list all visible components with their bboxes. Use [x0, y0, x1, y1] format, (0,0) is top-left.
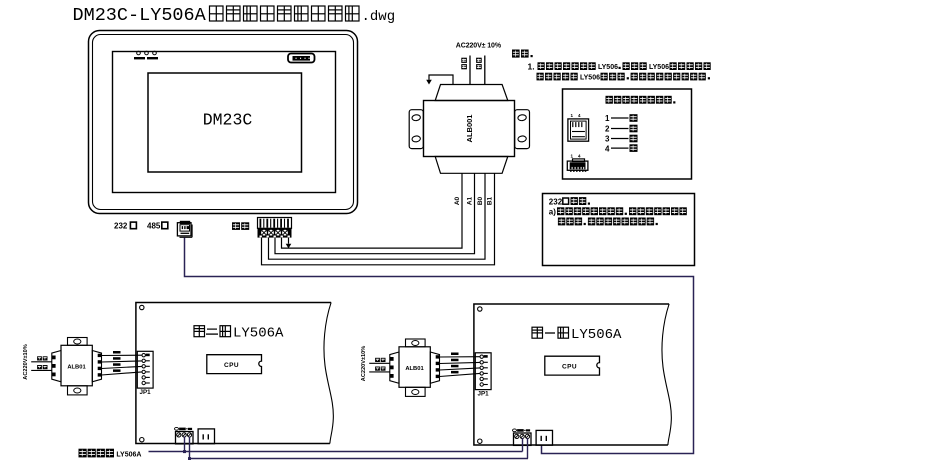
svg-text:DM23C: DM23C — [203, 111, 253, 130]
svg-text:a): a) — [549, 207, 556, 216]
svg-text:AC220V± 10%: AC220V± 10% — [456, 43, 502, 50]
svg-text:LY506A: LY506A — [116, 452, 141, 459]
svg-text:DM23C-LY506A: DM23C-LY506A — [73, 5, 207, 26]
svg-text:B1: B1 — [486, 196, 493, 205]
svg-text:LY506: LY506 — [649, 64, 669, 71]
svg-text:3: 3 — [605, 135, 610, 144]
svg-text:A0: A0 — [454, 196, 461, 205]
svg-text:AC220V±10%: AC220V±10% — [361, 346, 367, 381]
svg-text:AC220V±10%: AC220V±10% — [23, 344, 29, 379]
svg-text:ALB01: ALB01 — [405, 366, 424, 372]
svg-text:JP1: JP1 — [478, 391, 490, 398]
svg-text:CPU: CPU — [562, 364, 577, 371]
svg-text:A1: A1 — [466, 196, 473, 205]
svg-text:ALB01: ALB01 — [67, 365, 86, 371]
svg-text:JP1: JP1 — [140, 389, 152, 396]
svg-text:4: 4 — [605, 144, 610, 153]
svg-text:LY506A: LY506A — [233, 326, 284, 342]
svg-text:LY506A: LY506A — [571, 327, 622, 343]
svg-text:232: 232 — [549, 197, 563, 206]
svg-text:CPU: CPU — [224, 362, 239, 369]
svg-text:LY506: LY506 — [580, 75, 600, 82]
svg-text:232: 232 — [114, 222, 128, 231]
svg-text:1: 1 — [605, 114, 610, 123]
svg-text:1.: 1. — [528, 62, 535, 72]
svg-text:485: 485 — [147, 222, 161, 231]
svg-text:LY506: LY506 — [598, 64, 618, 71]
svg-text:2: 2 — [605, 125, 610, 134]
svg-text:.dwg: .dwg — [362, 9, 396, 25]
svg-text:ALB001: ALB001 — [465, 115, 474, 143]
svg-text:B0: B0 — [477, 196, 484, 205]
